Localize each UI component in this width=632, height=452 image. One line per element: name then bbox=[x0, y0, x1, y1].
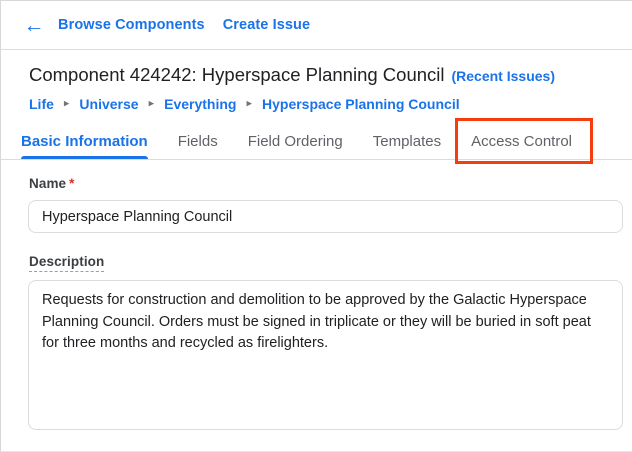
active-tab-indicator bbox=[21, 156, 148, 159]
description-textarea[interactable]: Requests for construction and demolition… bbox=[28, 280, 623, 430]
tab-bar: Basic Information Fields Field Ordering … bbox=[1, 124, 632, 160]
name-input[interactable] bbox=[28, 200, 623, 233]
tab-label: Field Ordering bbox=[248, 133, 343, 150]
breadcrumb-item-hyperspace-planning-council[interactable]: Hyperspace Planning Council bbox=[262, 96, 460, 112]
page-title: Component 424242: Hyperspace Planning Co… bbox=[29, 64, 445, 86]
component-form: Name* Description Requests for construct… bbox=[1, 160, 632, 435]
chevron-right-icon: ▸ bbox=[64, 98, 70, 109]
back-button[interactable]: ← bbox=[21, 12, 47, 38]
tab-field-ordering[interactable]: Field Ordering bbox=[248, 124, 343, 159]
topbar: ← Browse Components Create Issue bbox=[1, 1, 632, 50]
page: ← Browse Components Create Issue Compone… bbox=[0, 0, 632, 452]
tab-label: Templates bbox=[373, 133, 441, 150]
required-asterisk: * bbox=[69, 176, 74, 191]
tab-access-control[interactable]: Access Control bbox=[471, 124, 572, 159]
title-row: Component 424242: Hyperspace Planning Co… bbox=[29, 64, 622, 86]
chevron-right-icon: ▸ bbox=[246, 98, 252, 109]
tab-basic-information[interactable]: Basic Information bbox=[21, 124, 148, 159]
breadcrumb-item-everything[interactable]: Everything bbox=[164, 96, 236, 112]
arrow-back-icon: ← bbox=[24, 15, 45, 36]
tab-label: Fields bbox=[178, 133, 218, 150]
breadcrumb: Life ▸ Universe ▸ Everything ▸ Hyperspac… bbox=[29, 96, 622, 112]
recent-issues-link[interactable]: (Recent Issues) bbox=[452, 68, 555, 84]
description-label: Description bbox=[29, 254, 623, 272]
breadcrumb-item-life[interactable]: Life bbox=[29, 96, 54, 112]
chevron-right-icon: ▸ bbox=[149, 98, 155, 109]
tab-label: Access Control bbox=[471, 133, 572, 150]
main-content: Component 424242: Hyperspace Planning Co… bbox=[1, 64, 632, 435]
create-issue-link[interactable]: Create Issue bbox=[223, 17, 310, 33]
tab-fields[interactable]: Fields bbox=[178, 124, 218, 159]
tab-templates[interactable]: Templates bbox=[373, 124, 441, 159]
name-label-text: Name bbox=[29, 176, 66, 191]
description-label-text: Description bbox=[29, 254, 104, 272]
tab-label: Basic Information bbox=[21, 133, 148, 150]
breadcrumb-item-universe[interactable]: Universe bbox=[79, 96, 138, 112]
browse-components-link[interactable]: Browse Components bbox=[58, 17, 205, 33]
name-label: Name* bbox=[29, 176, 623, 191]
